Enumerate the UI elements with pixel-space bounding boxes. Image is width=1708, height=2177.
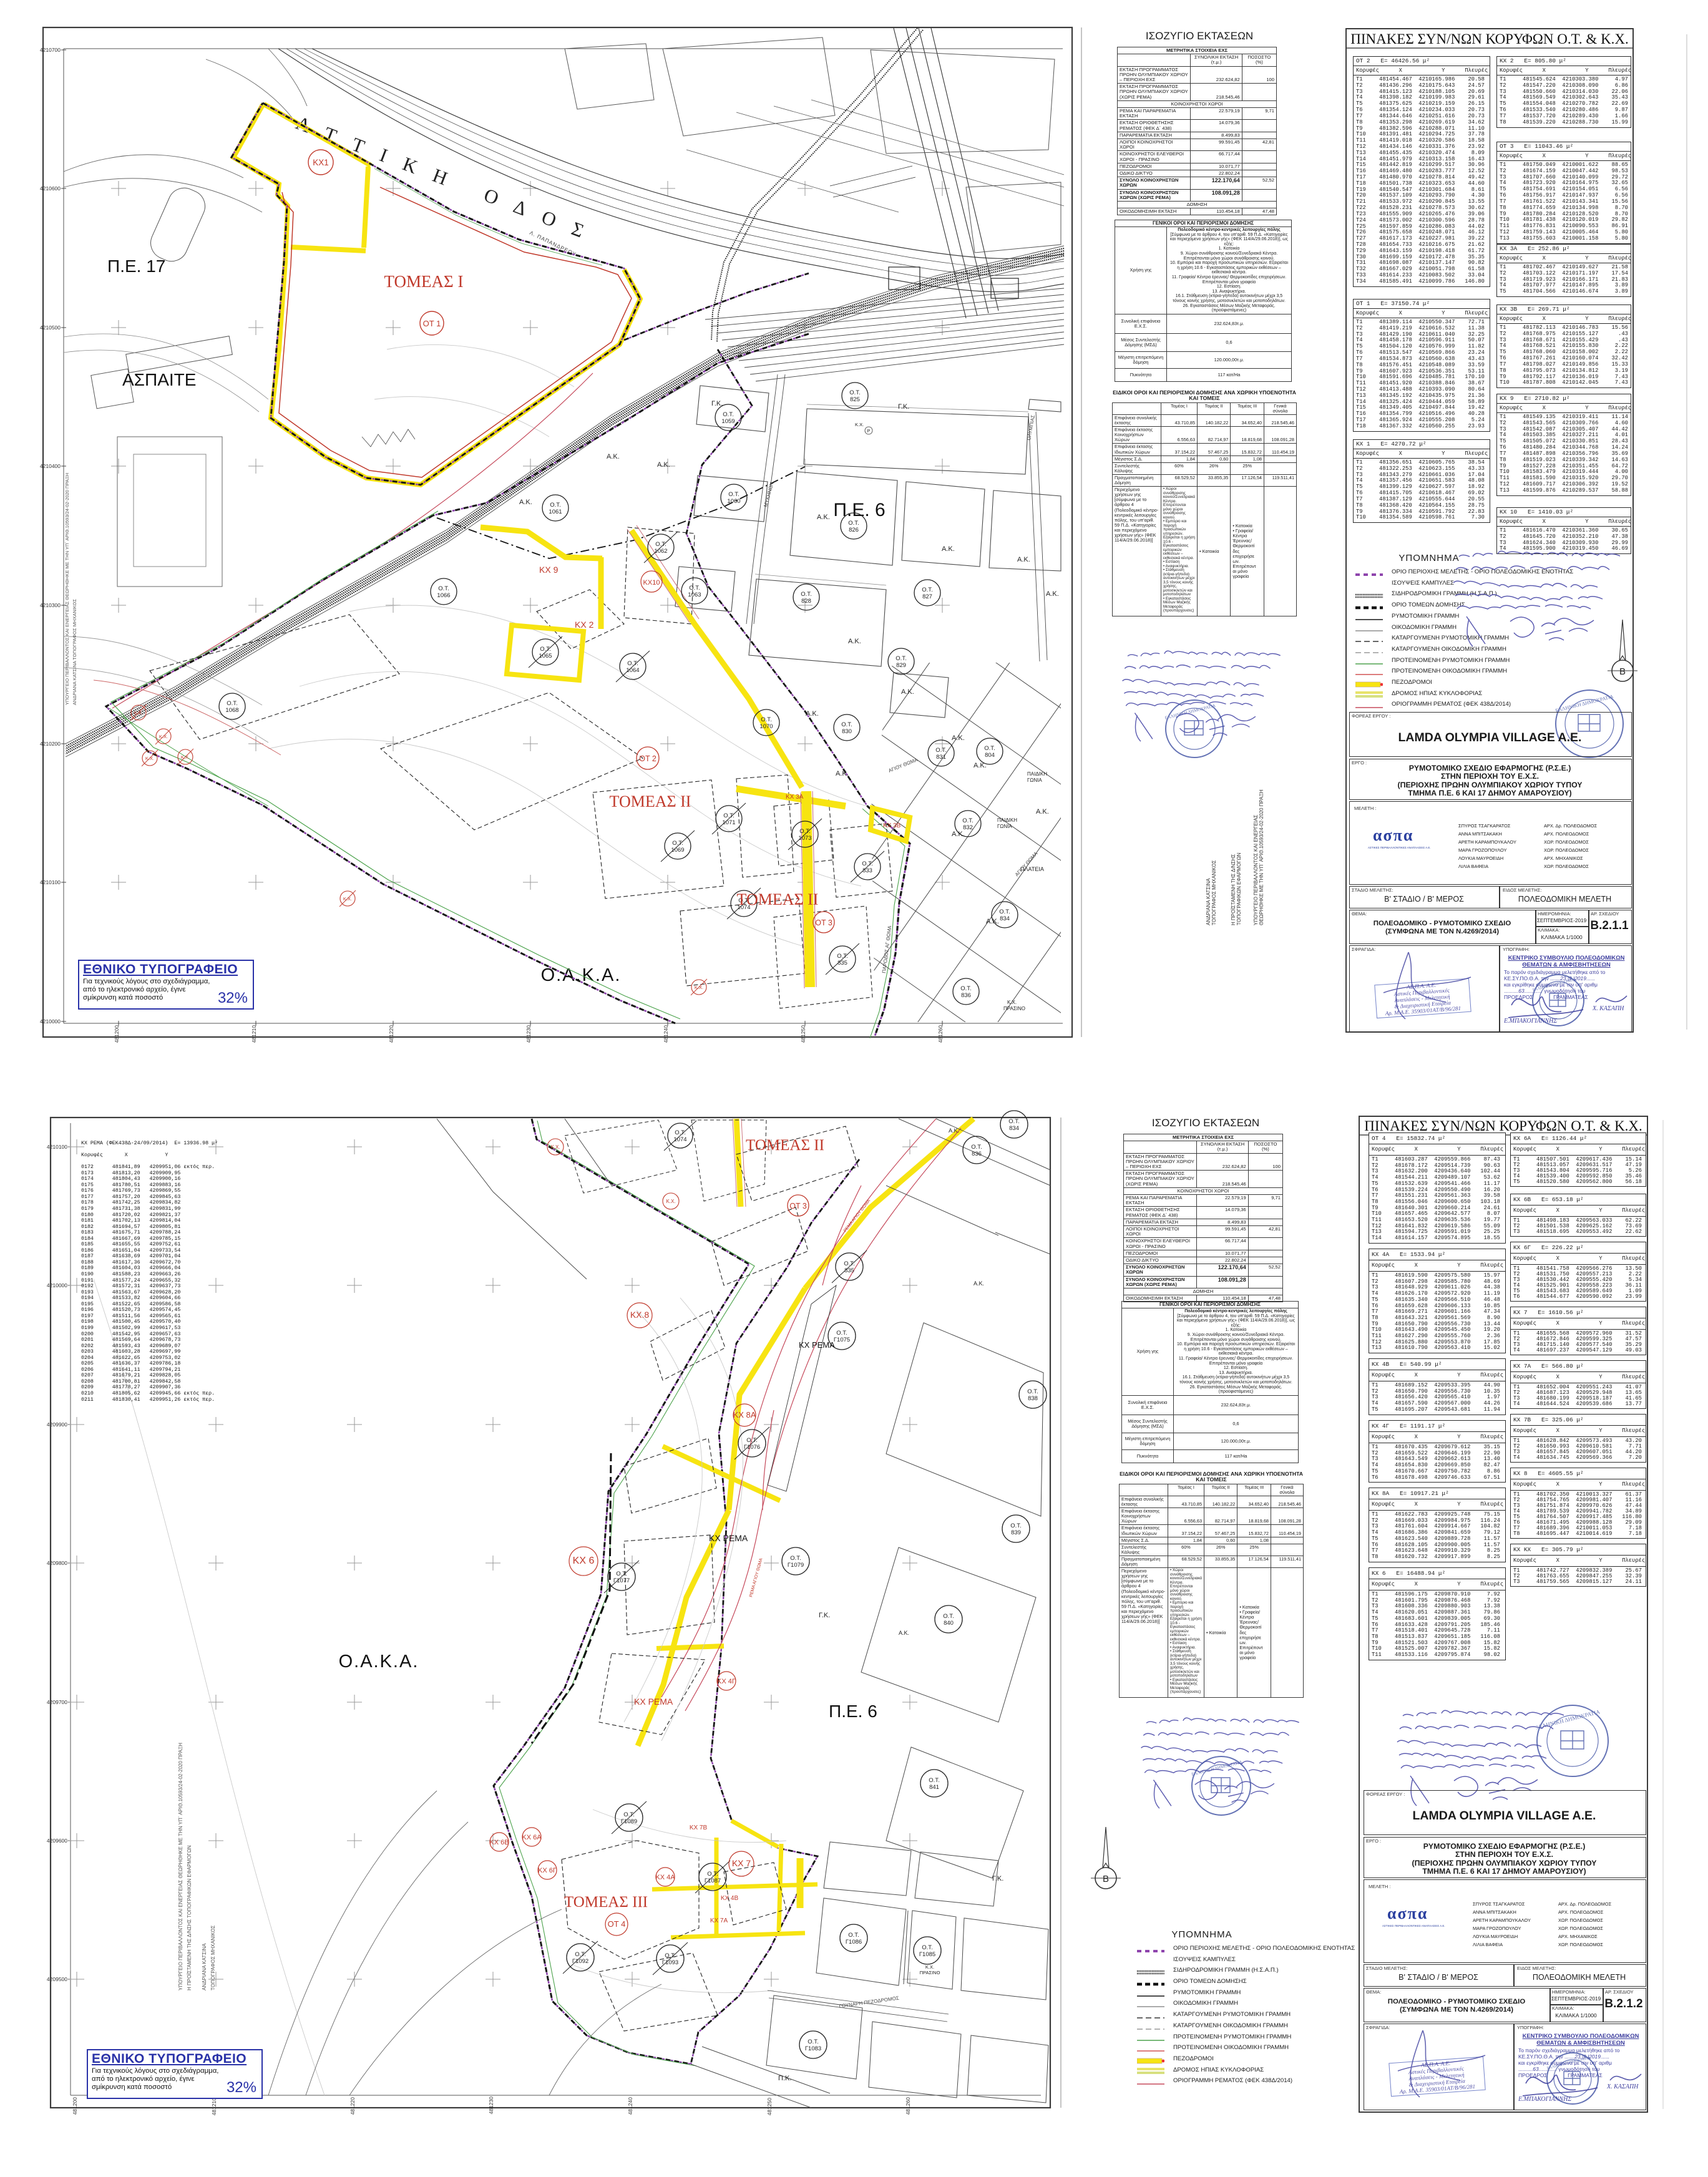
- svg-text:Ο.Τ.: Ο.Τ.: [438, 585, 449, 592]
- svg-text:Α.Κ.: Α.Κ.: [974, 1280, 984, 1287]
- svg-text:481240: 481240: [627, 2097, 633, 2115]
- svg-text:829: 829: [896, 662, 906, 669]
- svg-text:Γ1075: Γ1075: [834, 1337, 850, 1343]
- svg-text:ΚΧ ΡΕΜΑ: ΚΧ ΡΕΜΑ: [634, 1697, 673, 1707]
- svg-text:ΤΟΜΕΑΣ ΙΙ: ΤΟΜΕΑΣ ΙΙ: [610, 792, 691, 811]
- svg-text:Γ1093: Γ1093: [662, 1959, 678, 1966]
- svg-text:ΚΧ1: ΚΧ1: [313, 158, 329, 167]
- svg-text:Α.Κ.: Α.Κ.: [899, 1630, 909, 1636]
- svg-text:834: 834: [1009, 1125, 1019, 1132]
- svg-text:Η ΠΡΟΪΣΤΑΜΕΝΗ ΤΗΣ Δ/ΝΣΗΣ ΤΟΠΟΓ: Η ΠΡΟΪΣΤΑΜΕΝΗ ΤΗΣ Δ/ΝΣΗΣ ΤΟΠΟΓΡΑΦΙΚΩΝ ΕΦ…: [187, 1845, 192, 1990]
- svg-text:1059: 1059: [721, 418, 734, 425]
- svg-text:ΚΧ 6Γ: ΚΧ 6Γ: [538, 1867, 557, 1874]
- svg-text:1060: 1060: [727, 498, 740, 505]
- svg-text:Π.Ε. 6: Π.Ε. 6: [829, 1702, 877, 1721]
- svg-text:Κ.Χ.: Κ.Χ.: [925, 1964, 934, 1970]
- svg-text:Ο.Τ.: Ο.Τ.: [761, 716, 771, 723]
- svg-text:Γ1089: Γ1089: [621, 1818, 637, 1825]
- svg-text:481210: 481210: [211, 2098, 217, 2116]
- svg-text:Α.Κ.: Α.Κ.: [952, 734, 965, 742]
- svg-text:Ο.Τ.: Ο.Τ.: [227, 700, 237, 707]
- svg-text:Ρ: Ρ: [867, 429, 871, 434]
- svg-text:ΤΟΜΕΑΣ ΙΙΙ: ΤΟΜΕΑΣ ΙΙΙ: [564, 1894, 648, 1911]
- svg-text:ΟΤ 2: ΟΤ 2: [639, 754, 656, 763]
- svg-text:4209600: 4209600: [47, 1838, 67, 1844]
- svg-text:ΚΧ ΡΕΜΑ: ΚΧ ΡΕΜΑ: [799, 1340, 835, 1350]
- svg-text:Ο.Τ.: Ο.Τ.: [848, 520, 859, 527]
- svg-text:Α.Κ.: Α.Κ.: [836, 770, 849, 777]
- svg-text:1061: 1061: [549, 509, 562, 515]
- svg-text:804: 804: [985, 752, 995, 759]
- svg-text:Ο.Τ.: Ο.Τ.: [984, 745, 995, 752]
- svg-text:ΤΟΠΟΓΡΑΦΟΣ ΜΗΧΑΝΙΚΟΣ: ΤΟΠΟΓΡΑΦΟΣ ΜΗΧΑΝΙΚΟΣ: [210, 1926, 216, 1990]
- svg-text:4209500: 4209500: [47, 1976, 67, 1982]
- svg-text:Ο.Τ.: Ο.Τ.: [550, 502, 560, 509]
- svg-text:833: 833: [862, 867, 872, 874]
- svg-text:1063: 1063: [688, 592, 701, 598]
- svg-text:Α.Κ.: Α.Κ.: [607, 453, 620, 460]
- svg-text:Ο.Τ.: Ο.Τ.: [1008, 1118, 1019, 1125]
- svg-text:4210300: 4210300: [40, 602, 61, 608]
- svg-text:ΚΧ 7Β: ΚΧ 7Β: [690, 1824, 708, 1831]
- svg-text:ΓΩΝΙΑ: ΓΩΝΙΑ: [997, 824, 1012, 829]
- svg-text:831: 831: [936, 754, 946, 761]
- svg-text:4210100: 4210100: [47, 1144, 67, 1150]
- svg-text:ΑΣΠΑΙΤΕ: ΑΣΠΑΙΤΕ: [122, 370, 196, 389]
- svg-text:ΠΡΑΣΙΝΟ: ΠΡΑΣΙΝΟ: [920, 1970, 940, 1975]
- svg-text:ΕΛΛΗΝΙΚΗ ΔΗΜΟΚΡΑΤΙΑ: ΕΛΛΗΝΙΚΗ ΔΗΜΟΚΡΑΤΙΑ: [1536, 1708, 1601, 1731]
- svg-text:Α.Κ.: Α.Κ.: [848, 638, 861, 645]
- svg-text:841: 841: [929, 1784, 939, 1791]
- svg-text:Ο.Τ.: Ο.Τ.: [960, 985, 971, 992]
- svg-text:ΚΧ 4Β: ΚΧ 4Β: [721, 1895, 739, 1902]
- svg-text:Ο.Τ.: Ο.Τ.: [808, 2038, 818, 2045]
- svg-text:4210000: 4210000: [40, 1018, 61, 1025]
- svg-text:ΚΧ 7: ΚΧ 7: [732, 1858, 751, 1868]
- svg-text:Κ.Χ.: Κ.Χ.: [855, 422, 864, 427]
- svg-text:ΚΧ 9: ΚΧ 9: [539, 565, 559, 575]
- svg-text:Ο.Τ.: Ο.Τ.: [848, 1932, 859, 1939]
- svg-text:1070: 1070: [759, 723, 773, 730]
- svg-text:481230: 481230: [525, 1025, 532, 1043]
- svg-text:836: 836: [961, 992, 971, 999]
- svg-text:Γ1076: Γ1076: [744, 1444, 760, 1451]
- svg-text:Γ.Κ.: Γ.Κ.: [819, 1612, 830, 1619]
- svg-text:Ο.Τ.: Ο.Τ.: [999, 908, 1010, 915]
- svg-text:ΥΠΟΥΡΓΕΙΟ ΠΕΡΙΒΑΛΛΟΝΤΟΣ ΚΑΙ ΕΝ: ΥΠΟΥΡΓΕΙΟ ΠΕΡΙΒΑΛΛΟΝΤΟΣ ΚΑΙ ΕΝΕΡΓΕΙΑΣ ΘΕ…: [64, 473, 70, 705]
- svg-text:ΤΟΜΕΑΣ ΙΙ: ΤΟΜΕΑΣ ΙΙ: [746, 1137, 824, 1154]
- svg-text:Γ.Κ.: Γ.Κ.: [992, 1875, 1003, 1882]
- svg-text:ΚΧ ΡΕΜΑ: ΚΧ ΡΕΜΑ: [709, 1533, 748, 1543]
- svg-text:Α.Κ.: Α.Κ.: [986, 918, 999, 925]
- svg-text:481260: 481260: [905, 2097, 911, 2115]
- svg-text:Γ.Κ.: Γ.Κ.: [898, 403, 909, 411]
- svg-text:ΚΧ10: ΚΧ10: [643, 579, 660, 587]
- svg-text:Α.Κ.: Α.Κ.: [901, 688, 914, 696]
- svg-text:Α.Κ.: Α.Κ.: [657, 461, 670, 469]
- svg-text:4210100: 4210100: [40, 879, 61, 885]
- svg-text:ΚΧ.8: ΚΧ.8: [630, 1310, 650, 1320]
- svg-text:4210200: 4210200: [40, 741, 61, 747]
- svg-text:ΕΛΛΗΝΙΚΗ ΔΗΜΟΚΡΑΤΙΑ: ΕΛΛΗΝΙΚΗ ΔΗΜΟΚΡΑΤΙΑ: [1165, 703, 1216, 721]
- svg-text:Γ1083: Γ1083: [805, 2045, 821, 2052]
- svg-text:Ο.Τ.: Ο.Τ.: [841, 721, 852, 728]
- svg-text:Γ1092: Γ1092: [572, 1958, 588, 1965]
- svg-text:ΠΡΑΣΙΝΟ: ΠΡΑΣΙΝΟ: [1003, 1006, 1025, 1011]
- svg-text:Ο.Τ.: Ο.Τ.: [943, 1613, 954, 1620]
- svg-text:4209800: 4209800: [47, 1560, 67, 1566]
- svg-text:Ο.Τ.: Ο.Τ.: [935, 747, 946, 754]
- svg-text:ΟΤ 3: ΟΤ 3: [789, 1202, 807, 1210]
- svg-text:Α.Κ.: Α.Κ.: [942, 545, 955, 553]
- svg-text:826: 826: [849, 527, 859, 533]
- svg-text:ΚΧ 2: ΚΧ 2: [575, 620, 594, 630]
- svg-text:ΚΧ 4Γ: ΚΧ 4Γ: [717, 1678, 736, 1685]
- svg-text:Ο.Τ.: Ο.Τ.: [1010, 1522, 1021, 1529]
- svg-text:4210700: 4210700: [40, 47, 61, 53]
- svg-text:Γ.Κ.: Γ.Κ.: [711, 400, 723, 407]
- svg-text:481250: 481250: [766, 2098, 773, 2116]
- svg-text:Ο.Α.Κ.Α.: Ο.Α.Κ.Α.: [339, 1652, 419, 1672]
- svg-text:Α.Κ.: Α.Κ.: [949, 1127, 959, 1134]
- svg-text:Α.Κ.: Α.Κ.: [952, 830, 965, 838]
- svg-text:Ο.Τ.: Ο.Τ.: [929, 1777, 939, 1784]
- svg-text:ΚΧ 6Β: ΚΧ 6Β: [489, 1839, 509, 1846]
- svg-text:4210000: 4210000: [47, 1282, 67, 1288]
- svg-text:828: 828: [801, 598, 811, 605]
- svg-text:ΤΟΜΕΑΣ ΙΙ: ΤΟΜΕΑΣ ΙΙ: [737, 890, 819, 908]
- svg-text:Ο.Τ.: Ο.Τ.: [836, 1330, 847, 1337]
- svg-text:481220: 481220: [349, 2097, 356, 2115]
- svg-text:840: 840: [944, 1620, 954, 1627]
- svg-text:Ο.Τ.: Ο.Τ.: [971, 1144, 982, 1151]
- svg-text:835: 835: [844, 1267, 854, 1274]
- svg-text:ΚΧ 6: ΚΧ 6: [573, 1556, 595, 1566]
- svg-text:ΓΩΝΙΑ: ΓΩΝΙΑ: [1027, 777, 1042, 783]
- svg-text:Ο.Τ.: Ο.Τ.: [962, 817, 973, 824]
- svg-text:481260: 481260: [937, 1025, 944, 1043]
- svg-text:Α.Κ.: Α.Κ.: [974, 762, 987, 769]
- svg-text:Ο.Τ.: Ο.Τ.: [922, 587, 932, 593]
- svg-text:Π.Ε. 6: Π.Ε. 6: [833, 500, 885, 520]
- svg-text:ΚΧ 8Α: ΚΧ 8Α: [733, 1410, 756, 1420]
- svg-text:ΟΤ 1: ΟΤ 1: [423, 319, 441, 328]
- svg-text:Γ1079: Γ1079: [788, 1562, 804, 1569]
- svg-text:Γ1085: Γ1085: [919, 1951, 935, 1958]
- svg-text:Π.Ε. 17: Π.Ε. 17: [107, 256, 165, 276]
- svg-text:481220: 481220: [388, 1025, 394, 1043]
- svg-text:827: 827: [922, 593, 932, 600]
- svg-text:ΑΝΔΡΙΑΝΑ ΚΑΤΣΙΝΑ ΤΟΠΟΓΡΑΦΟΣ Μ: ΑΝΔΡΙΑΝΑ ΚΑΤΣΙΝΑ ΤΟΠΟΓΡΑΦΟΣ ΜΗΧΑΝΙΚΟΣ: [72, 598, 77, 705]
- svg-text:838: 838: [1028, 1395, 1038, 1402]
- svg-text:Α.Κ.: Α.Κ.: [1017, 556, 1030, 563]
- svg-text:835: 835: [837, 960, 847, 967]
- svg-text:Ο.Τ.: Ο.Τ.: [801, 591, 811, 598]
- svg-text:ΠΑΙΔΙΚΗ: ΠΑΙΔΙΚΗ: [1027, 771, 1047, 777]
- svg-text:ΚΧ 3Α: ΚΧ 3Α: [786, 794, 804, 801]
- svg-text:Ο.Τ.: Ο.Τ.: [922, 1944, 932, 1951]
- svg-text:ΠΑΙΔΙΚΗ: ΠΑΙΔΙΚΗ: [997, 817, 1017, 823]
- svg-text:481250: 481250: [800, 1025, 806, 1043]
- svg-text:836: 836: [972, 1151, 982, 1157]
- svg-text:Π.Κ.: Π.Κ.: [778, 2075, 791, 2082]
- svg-text:4209900: 4209900: [47, 1421, 67, 1428]
- svg-text:4210600: 4210600: [40, 185, 61, 192]
- svg-text:Α.Κ.: Α.Κ.: [1046, 590, 1059, 598]
- svg-text:ΚΧ 3Β: ΚΧ 3Β: [883, 822, 901, 829]
- svg-text:ΚΧ 6Α: ΚΧ 6Α: [522, 1834, 542, 1841]
- svg-text:Γ1077: Γ1077: [613, 1577, 630, 1584]
- svg-text:Κ.Χ.: Κ.Χ.: [1007, 1000, 1017, 1005]
- svg-text:B: B: [1103, 1874, 1109, 1884]
- svg-text:Γ1086: Γ1086: [846, 1939, 862, 1946]
- svg-text:Α.Κ.: Α.Κ.: [1036, 808, 1049, 816]
- svg-text:B: B: [1619, 666, 1626, 677]
- svg-text:Κ.Χ.: Κ.Χ.: [550, 1144, 560, 1150]
- svg-text:839: 839: [1011, 1529, 1021, 1536]
- svg-text:481200: 481200: [72, 2097, 78, 2115]
- svg-text:ΠΙΝΑΚΕΣ ΣΥΝ/ΝΩΝ ΚΟΡΥΦΩΝ Ο.Τ. &: ΠΙΝΑΚΕΣ ΣΥΝ/ΝΩΝ ΚΟΡΥΦΩΝ Ο.Τ. & Κ.Χ.: [1350, 31, 1629, 47]
- svg-text:Ο.Τ.: Ο.Τ.: [895, 655, 906, 662]
- svg-text:Γ1087: Γ1087: [705, 1877, 721, 1884]
- svg-text:Α.Κ.: Α.Κ.: [519, 499, 532, 506]
- svg-text:ΕΛΛΗΝΙΚΗ ΔΗΜΟΚΡΑΤΙΑ: ΕΛΛΗΝΙΚΗ ΔΗΜΟΚΡΑΤΙΑ: [1191, 1760, 1242, 1777]
- svg-text:ΥΠΟΥΡΓΕΙΟ ΠΕΡΙΒΑΛΛΟΝΤΟΣ ΚΑΙ ΕΝ: ΥΠΟΥΡΓΕΙΟ ΠΕΡΙΒΑΛΛΟΝΤΟΣ ΚΑΙ ΕΝΕΡΓΕΙΑΣ ΘΕ…: [178, 1743, 183, 1990]
- svg-text:481240: 481240: [663, 1025, 669, 1043]
- svg-text:ΠΙΝΑΚΕΣ ΣΥΝ/ΝΩΝ ΚΟΡΥΦΩΝ Ο.Τ. &: ΠΙΝΑΚΕΣ ΣΥΝ/ΝΩΝ ΚΟΡΥΦΩΝ Ο.Τ. & Κ.Χ.: [1364, 1118, 1642, 1134]
- svg-text:Ο.Τ.: Ο.Τ.: [723, 411, 733, 418]
- svg-text:4210500: 4210500: [40, 324, 61, 331]
- svg-text:ΚΧ 4Α: ΚΧ 4Α: [655, 1874, 675, 1881]
- svg-text:Ο.Τ.: Ο.Τ.: [1027, 1388, 1038, 1395]
- svg-text:Α.Κ.: Α.Κ.: [806, 710, 819, 718]
- svg-text:ΕΛΛΗΝΙΚΗ ΔΗΜΟΚΡΑΤΙΑ: ΕΛΛΗΝΙΚΗ ΔΗΜΟΚΡΑΤΙΑ: [1555, 694, 1614, 714]
- svg-text:Κ.Χ.: Κ.Χ.: [666, 1199, 675, 1204]
- svg-text:481230: 481230: [488, 2097, 494, 2115]
- svg-text:ΤΟΜΕΑΣ Ι: ΤΟΜΕΑΣ Ι: [384, 272, 464, 291]
- svg-text:481210: 481210: [251, 1025, 257, 1043]
- svg-text:Α.Κ.: Α.Κ.: [817, 514, 830, 521]
- svg-text:481200: 481200: [114, 1025, 120, 1043]
- svg-text:ΟΤ 3: ΟΤ 3: [815, 918, 832, 927]
- svg-text:825: 825: [850, 396, 860, 403]
- svg-text:ΟΤ 4: ΟΤ 4: [608, 1919, 626, 1929]
- svg-text:ΚΧ 7Α: ΚΧ 7Α: [710, 1917, 728, 1924]
- svg-text:830: 830: [842, 728, 852, 735]
- svg-text:ΑΝΔΡΙΑΝΑ ΚΑΤΣΙΝΑ: ΑΝΔΡΙΑΝΑ ΚΑΤΣΙΝΑ: [202, 1943, 207, 1990]
- svg-text:Ο.Τ.: Ο.Τ.: [790, 1555, 801, 1562]
- svg-text:Ο.Τ.: Ο.Τ.: [728, 491, 739, 498]
- svg-text:4210400: 4210400: [40, 463, 61, 469]
- svg-text:Ο.Τ.: Ο.Τ.: [689, 585, 700, 592]
- svg-text:1066: 1066: [437, 592, 450, 599]
- svg-text:1068: 1068: [225, 707, 238, 714]
- svg-text:Ο.Τ.: Ο.Τ.: [849, 389, 860, 396]
- svg-text:834: 834: [1000, 915, 1010, 922]
- svg-text:4209700: 4209700: [47, 1699, 67, 1705]
